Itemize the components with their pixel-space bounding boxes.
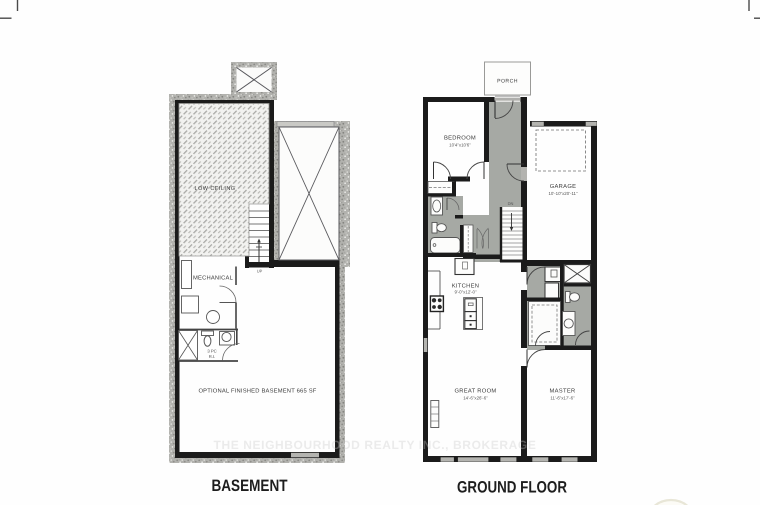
svg-text:GREAT ROOM: GREAT ROOM xyxy=(454,388,496,395)
svg-text:10'4"x10'6": 10'4"x10'6" xyxy=(449,143,471,148)
svg-text:14'-6"x26'-6": 14'-6"x26'-6" xyxy=(463,396,488,401)
svg-text:DN: DN xyxy=(508,201,514,206)
svg-text:KITCHEN: KITCHEN xyxy=(452,283,480,290)
svg-text:GROUND FLOOR: GROUND FLOOR xyxy=(457,479,567,497)
svg-text:MASTER: MASTER xyxy=(550,388,576,395)
svg-text:LOW CEILING: LOW CEILING xyxy=(194,186,235,192)
svg-text:BASEMENT: BASEMENT xyxy=(212,477,288,495)
svg-text:UP: UP xyxy=(257,269,263,274)
svg-text:GARAGE: GARAGE xyxy=(550,183,577,190)
svg-text:3 PC: 3 PC xyxy=(207,349,216,354)
svg-text:10'-10"x20'-11": 10'-10"x20'-11" xyxy=(548,191,578,196)
svg-text:11'-6"x17'-6": 11'-6"x17'-6" xyxy=(550,396,575,401)
svg-text:OPTIONAL FINISHED BASEMENT 665: OPTIONAL FINISHED BASEMENT 665 SF xyxy=(198,388,316,395)
svg-text:MECHANICAL: MECHANICAL xyxy=(193,275,234,282)
svg-text:PORCH: PORCH xyxy=(497,79,518,85)
svg-text:9'-0"x12'-0": 9'-0"x12'-0" xyxy=(454,290,477,295)
svg-text:THE NEIGHBOURHOOD REALTY INC.,: THE NEIGHBOURHOOD REALTY INC., BROKERAGE xyxy=(214,438,537,452)
svg-text:BEDROOM: BEDROOM xyxy=(444,135,476,142)
svg-text:R.I.: R.I. xyxy=(209,354,216,359)
